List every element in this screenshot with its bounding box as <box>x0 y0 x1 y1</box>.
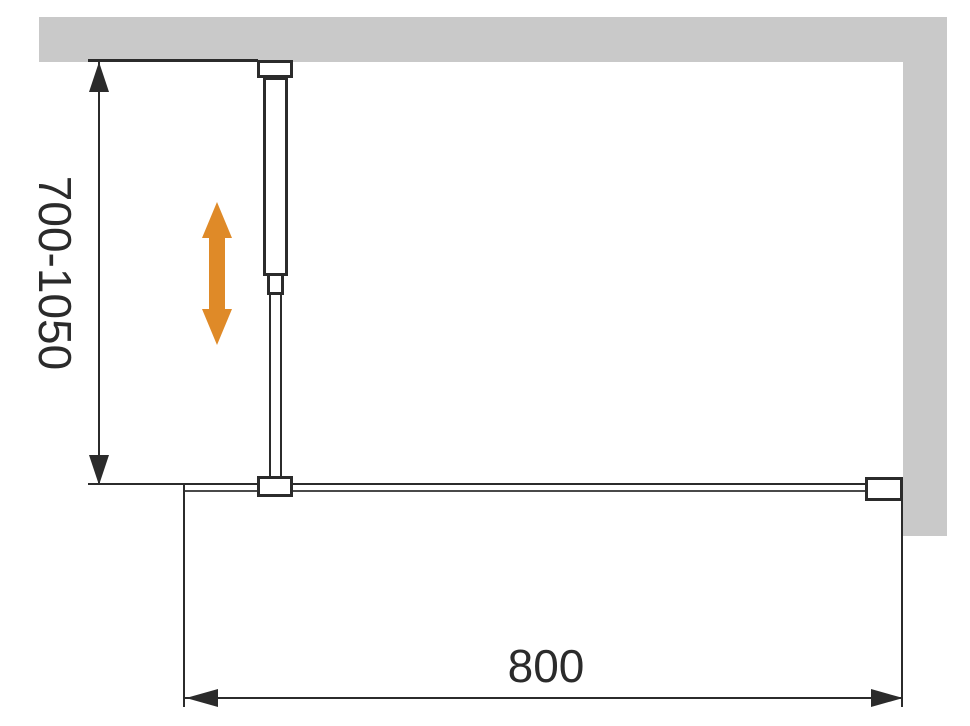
width-dimension-label: 800 <box>508 643 585 689</box>
width-extension-line-right <box>901 500 903 707</box>
side-wall <box>903 17 947 536</box>
adjust-arrow-shaft <box>209 234 225 313</box>
adjustability-arrow-icon <box>202 202 232 345</box>
height-dimension-label: 700-1050 <box>32 176 78 370</box>
height-dimension-line <box>98 62 100 485</box>
glass-wall-profile <box>865 477 903 501</box>
adjust-arrow-up-head <box>202 202 232 238</box>
wall-edge-extension-line <box>88 59 258 62</box>
width-extension-line-left <box>183 485 185 707</box>
glass-panel-top-edge <box>88 483 865 485</box>
width-dimension-arrow-right-icon <box>871 689 903 707</box>
ceiling-wall <box>39 17 947 62</box>
support-bar-collar <box>267 276 284 295</box>
height-dimension-arrow-down-icon <box>89 455 109 485</box>
support-bar-wall-bracket <box>257 60 293 78</box>
support-bar-rod <box>269 295 282 479</box>
support-bar-tube <box>263 77 288 276</box>
shower-screen-installation-diagram: { "diagram": { "type": "technical-instal… <box>0 0 970 726</box>
glass-clamp <box>257 476 293 497</box>
adjust-arrow-down-head <box>202 309 232 345</box>
height-dimension-arrow-up-icon <box>89 62 109 92</box>
width-dimension-arrow-left-icon <box>186 689 218 707</box>
width-dimension-line <box>184 697 903 699</box>
